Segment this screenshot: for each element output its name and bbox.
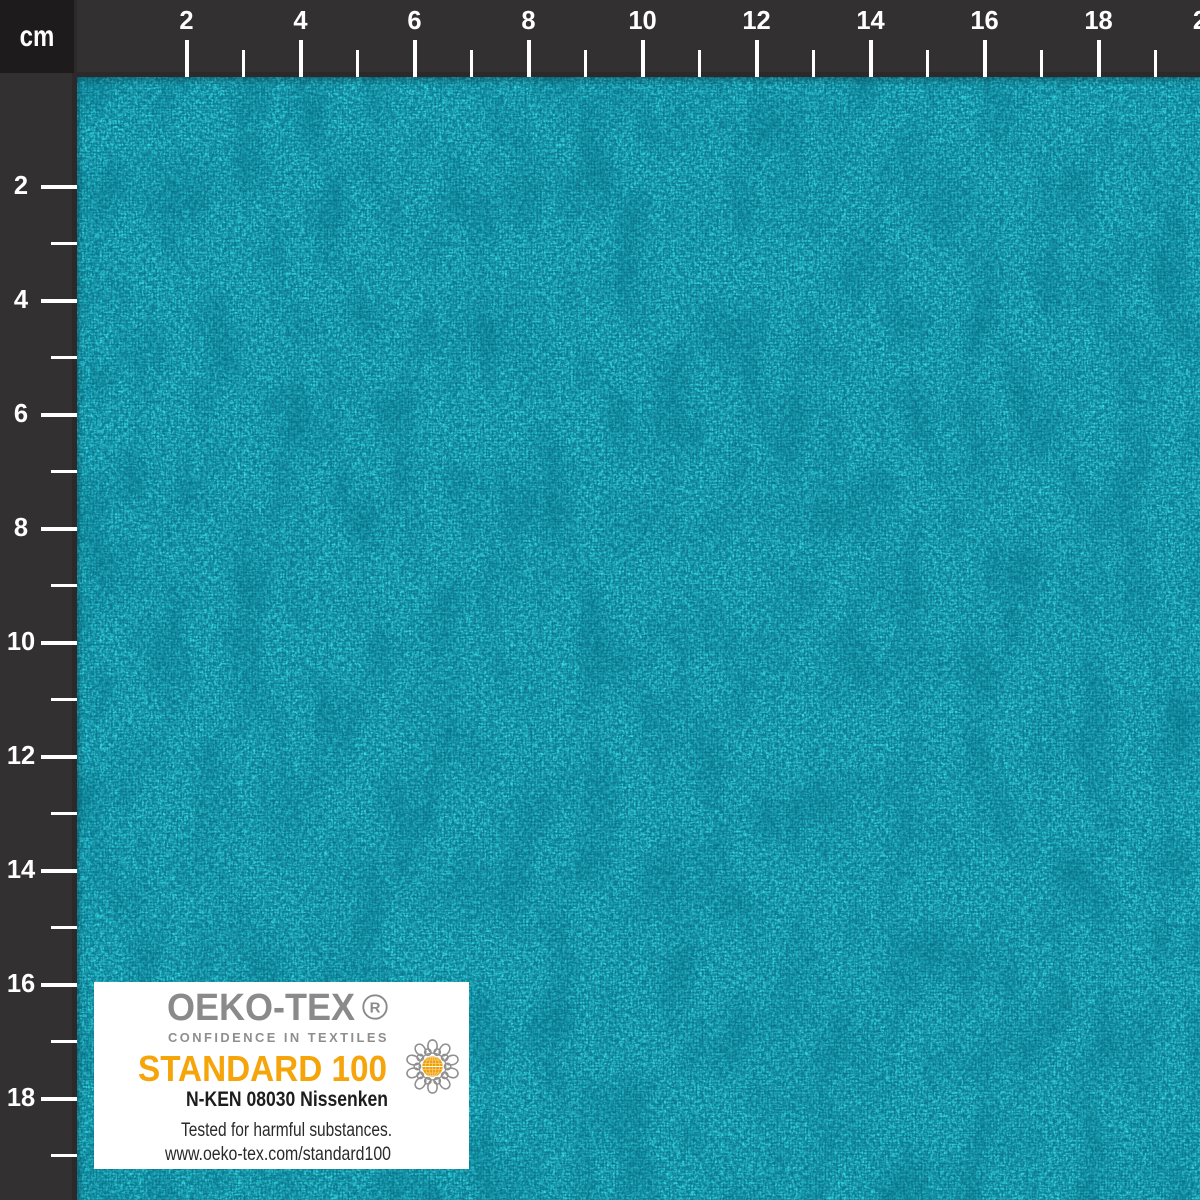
- svg-text:R: R: [370, 1000, 381, 1017]
